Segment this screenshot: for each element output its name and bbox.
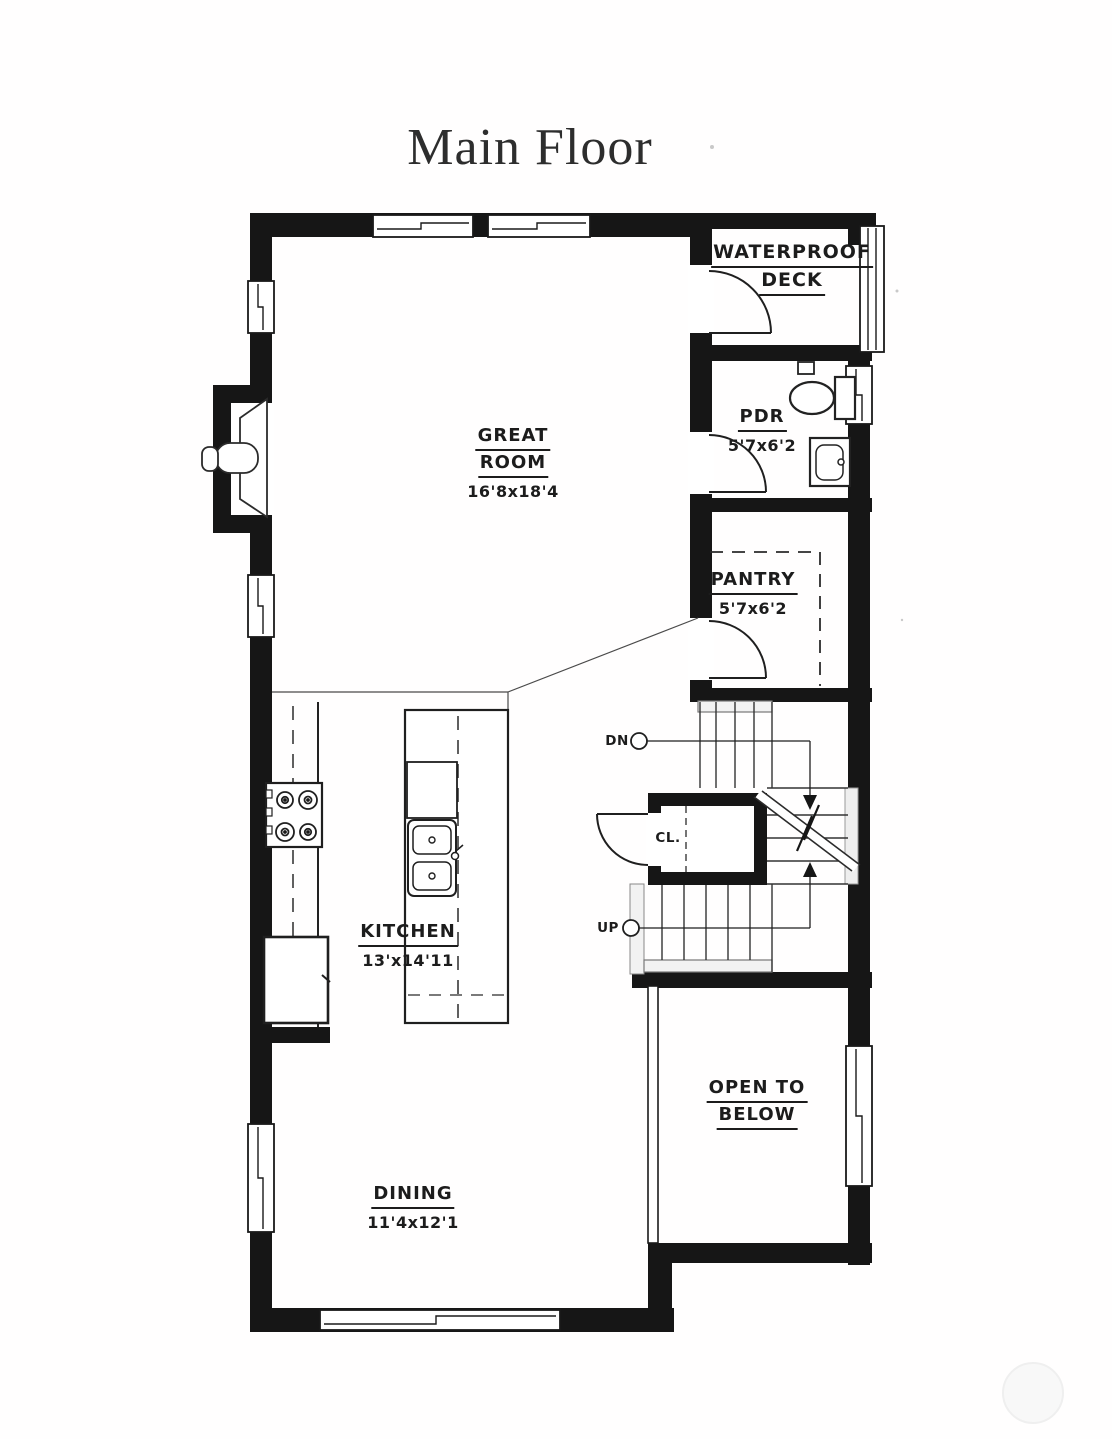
window-top-2 — [488, 215, 590, 237]
dining-dims: 11'4x12'1 — [367, 1212, 458, 1233]
pdr-sink-faucet — [838, 459, 844, 465]
openbelow-left-wall — [648, 986, 658, 1243]
toilet-bowl — [790, 382, 834, 414]
refrigerator — [264, 937, 330, 1023]
window-left-2 — [248, 575, 274, 637]
window-left-1 — [248, 281, 274, 333]
wall-pantry-bottom — [690, 688, 872, 702]
kitchen-island — [405, 710, 508, 1023]
great-room-name-line1: GREAT — [476, 424, 551, 451]
wall-stairhall-bottom — [632, 972, 872, 988]
open-to-below-line1: OPEN TO — [707, 1076, 808, 1103]
stairs-down-run — [698, 701, 772, 788]
toilet-paper-holder — [798, 362, 814, 374]
dining-name: DINING — [371, 1182, 454, 1209]
stairs-up-run — [630, 884, 772, 974]
wall-openbelow-bottom — [648, 1243, 872, 1263]
wall-deck-bottom — [690, 345, 872, 361]
page-title: Main Floor — [407, 118, 652, 177]
fireplace — [202, 385, 272, 533]
watermark-circle — [1003, 1363, 1063, 1423]
deck-label: WATERPROOF DECK — [711, 240, 873, 296]
window-left-3 — [248, 1124, 274, 1232]
windows — [248, 215, 884, 1330]
deck-label-line1: WATERPROOF — [711, 240, 873, 268]
window-top-1 — [373, 215, 473, 237]
kitchen-label: KITCHEN 13'x14'11 — [358, 920, 458, 971]
stairs-down-label: DN — [605, 733, 629, 751]
great-room-label: GREAT ROOM 16'8x18'4 — [467, 424, 558, 502]
stove — [266, 783, 322, 847]
pdr-name: PDR — [738, 405, 787, 432]
floor-plan-page: Main Floor WATERPROOF DECK GREAT ROOM 16… — [0, 0, 1112, 1439]
great-room-name-line2: ROOM — [478, 451, 548, 478]
island-faucet — [452, 853, 459, 860]
pantry-door — [709, 621, 766, 678]
pantry-name: PANTRY — [709, 568, 798, 595]
closet-door — [597, 814, 648, 865]
dishwasher — [407, 762, 457, 818]
pantry-label: PANTRY 5'7x6'2 — [709, 568, 798, 619]
wall-pdr-bottom — [690, 498, 872, 512]
kitchen-dims: 13'x14'11 — [358, 950, 458, 971]
floor-plan-drawing — [0, 0, 1112, 1439]
open-to-below-label: OPEN TO BELOW — [707, 1076, 808, 1130]
fireplace-vent — [202, 447, 218, 471]
window-bottom — [320, 1310, 560, 1330]
pdr-label: PDR 5'7x6'2 — [728, 405, 796, 456]
wall-top — [250, 213, 712, 237]
wall-counter-stub — [250, 1027, 330, 1043]
stairs-up-label: UP — [597, 920, 619, 938]
great-room-dims: 16'8x18'4 — [467, 481, 558, 502]
window-openbelow-right — [846, 1046, 872, 1186]
dining-label: DINING 11'4x12'1 — [367, 1182, 458, 1233]
kitchen-name: KITCHEN — [358, 920, 458, 947]
kitchen-diagonal-line — [508, 618, 698, 692]
pantry-dims: 5'7x6'2 — [709, 598, 798, 619]
open-to-below-line2: BELOW — [716, 1103, 797, 1130]
toilet-tank — [835, 377, 855, 419]
deck-label-line2: DECK — [759, 268, 824, 296]
hearth-tongue — [216, 443, 258, 473]
exterior-walls — [250, 213, 876, 1332]
closet-label: CL. — [655, 830, 680, 848]
island-double-sink — [408, 820, 463, 896]
pdr-dims: 5'7x6'2 — [728, 435, 796, 456]
